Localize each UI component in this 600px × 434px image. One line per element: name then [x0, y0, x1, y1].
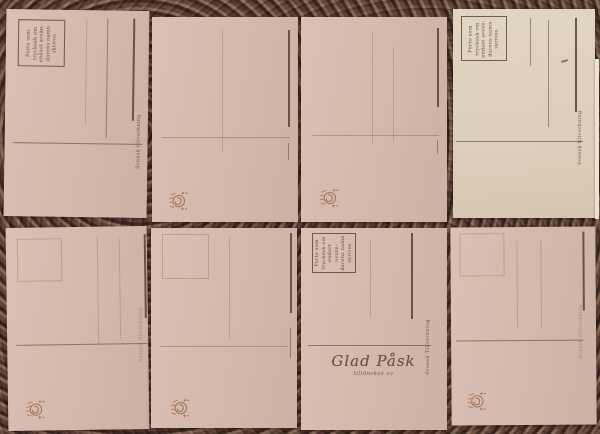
address-line	[132, 19, 135, 121]
address-line	[222, 29, 223, 151]
address-line	[288, 143, 289, 160]
divider-line	[160, 346, 288, 347]
address-line	[372, 31, 373, 143]
postcard-bottom-center-left	[151, 228, 297, 428]
address-line	[119, 238, 121, 338]
stamp-box: Porto som trycksak om endast avsän- dare…	[18, 19, 66, 67]
photo-background: Porto som trycksak om endast avsän- dare…	[0, 0, 600, 434]
maker-mark: Svensk tillverkning	[577, 110, 583, 165]
postcard-top-left: Porto som trycksak om endast avsän- dare…	[4, 9, 150, 218]
address-line	[370, 240, 371, 318]
printer-emblem-icon	[168, 397, 190, 423]
maker-mark: Svensk tillverkning	[135, 114, 142, 169]
easter-greeting: Glad Påsk	[326, 352, 421, 370]
printer-emblem-icon	[317, 187, 339, 213]
address-line	[106, 18, 109, 138]
easter-greeting-block: Glad Påsk tillönskas av	[326, 352, 421, 377]
stamp-box: Porto som trycksak om endast avsän- dare…	[461, 16, 507, 61]
stamp-box	[162, 234, 209, 279]
stamp-box-notice: Porto som trycksak om endast avsän- dare…	[468, 18, 501, 60]
address-line	[540, 239, 542, 329]
address-line	[97, 237, 100, 345]
printer-emblem-icon	[23, 398, 45, 424]
stamp-box	[17, 238, 63, 282]
card-edge-highlight	[595, 59, 599, 219]
pencil-mark	[561, 59, 568, 62]
address-line	[582, 232, 585, 311]
postcard-bottom-right: Svensk tillverkning	[450, 226, 596, 425]
maker-mark: Svensk Tillverkning	[425, 319, 431, 375]
maker-mark: Svensk tillverkning	[578, 304, 584, 359]
divider-line	[308, 345, 431, 346]
divider-line	[312, 135, 439, 136]
address-line	[85, 20, 87, 125]
address-line	[516, 241, 518, 327]
postcard-top-center-left	[152, 17, 298, 222]
address-line	[548, 20, 549, 127]
stamp-box-notice: Porto som trycksak om endast avsän- dare…	[25, 22, 59, 64]
postcard-bottom-center-right: Porto som trycksak om endast avsän- dare…	[301, 228, 447, 430]
address-line	[144, 234, 147, 318]
printer-emblem-icon	[166, 190, 188, 216]
printer-emblem-icon	[464, 390, 486, 416]
stamp-box-notice: Porto som trycksak om endast avsän- dare…	[314, 235, 354, 271]
address-line	[290, 328, 291, 358]
stamp-box	[459, 233, 504, 276]
easter-greeting-sub: tillönskas av	[326, 371, 421, 377]
divider-line	[13, 142, 143, 145]
address-line	[290, 233, 292, 313]
address-line	[437, 140, 438, 154]
maker-mark: Svensk tillverkning	[138, 307, 145, 362]
divider-line	[456, 141, 583, 142]
address-line	[288, 30, 290, 127]
address-line	[393, 47, 394, 142]
address-line	[575, 18, 577, 112]
address-line	[229, 238, 230, 338]
divider-line	[456, 340, 583, 342]
address-line	[437, 28, 439, 107]
postcard-top-center-right	[301, 17, 447, 222]
stamp-box: Porto som trycksak om endast avsän- dare…	[312, 233, 356, 273]
postcard-top-right: Porto som trycksak om endast avsän- dare…	[453, 9, 595, 218]
divider-line	[162, 137, 290, 138]
address-line	[530, 18, 531, 66]
address-line	[411, 233, 413, 319]
divider-line	[16, 343, 147, 346]
postcard-bottom-left: Svensk tillverkning	[6, 226, 150, 431]
